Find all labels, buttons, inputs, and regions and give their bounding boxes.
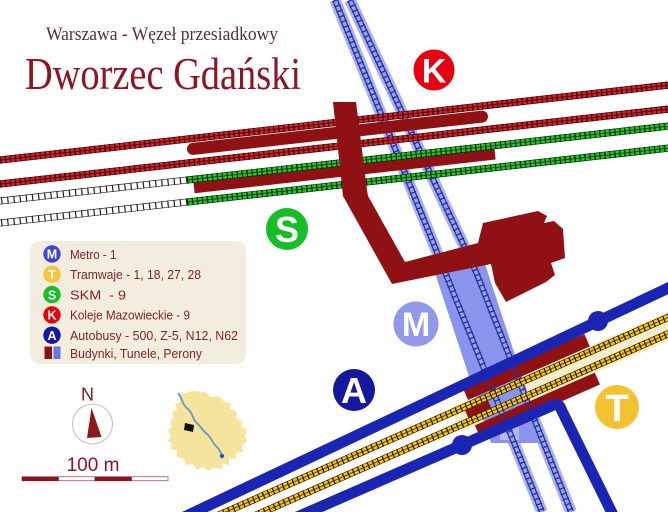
svg-text:M: M — [47, 248, 57, 262]
svg-text:Metro - 1: Metro - 1 — [70, 247, 117, 262]
svg-text:SKM - 9: SKM - 9 — [70, 287, 126, 302]
svg-text:N: N — [81, 385, 94, 405]
svg-text:K: K — [422, 53, 447, 91]
svg-text:Budynki, Tunele, Perony: Budynki, Tunele, Perony — [70, 346, 202, 361]
svg-text:A: A — [47, 329, 56, 343]
svg-text:Tramwaje - 1, 18, 27, 28: Tramwaje - 1, 18, 27, 28 — [70, 267, 201, 282]
svg-text:Koleje Mazowieckie - 9: Koleje Mazowieckie - 9 — [70, 308, 190, 323]
svg-text:T: T — [605, 388, 628, 430]
svg-text:Dworzec Gdański: Dworzec Gdański — [25, 49, 301, 99]
svg-text:M: M — [402, 306, 430, 344]
svg-text:S: S — [275, 209, 299, 250]
svg-text:K: K — [47, 309, 56, 323]
svg-text:100 m: 100 m — [67, 455, 120, 476]
svg-text:A: A — [341, 370, 367, 411]
svg-text:Warszawa - Węzeł przesiadkowy: Warszawa - Węzeł przesiadkowy — [46, 24, 278, 45]
svg-text:T: T — [48, 268, 56, 282]
svg-text:S: S — [48, 288, 56, 302]
svg-text:Autobusy - 500, Z-5, N12, N62: Autobusy - 500, Z-5, N12, N62 — [70, 328, 238, 343]
